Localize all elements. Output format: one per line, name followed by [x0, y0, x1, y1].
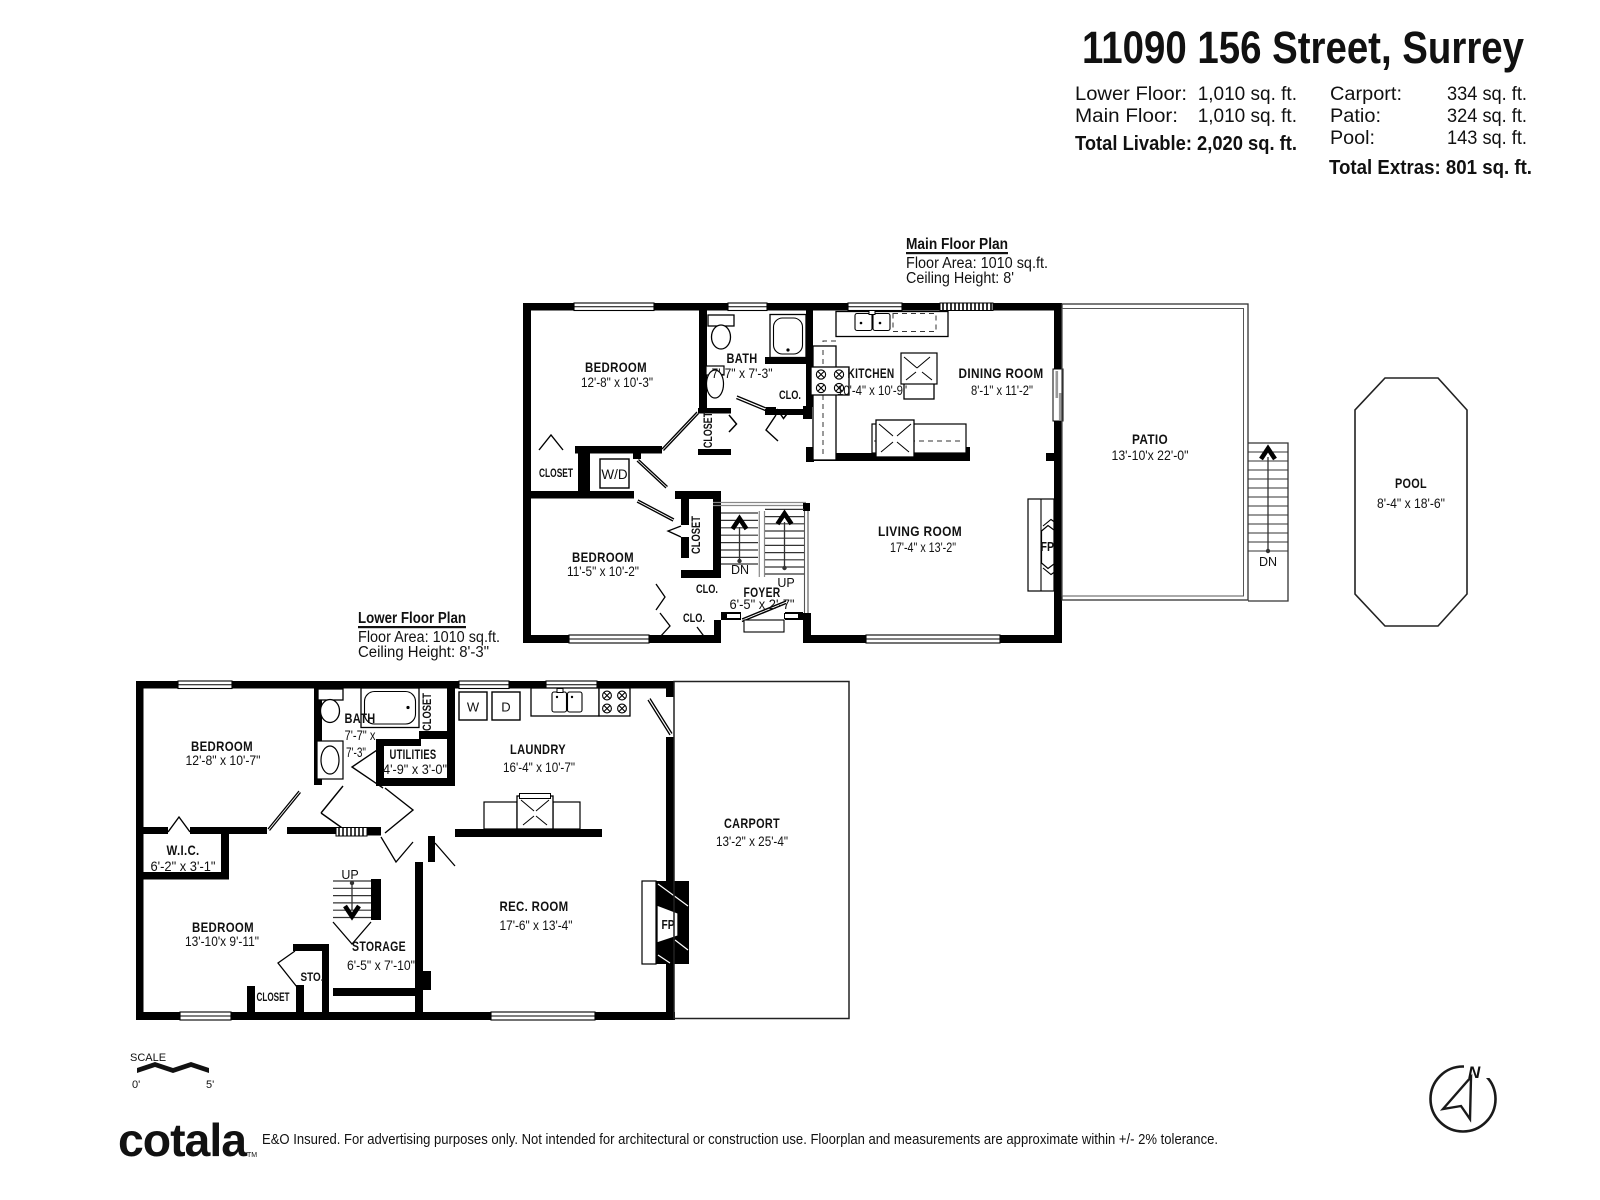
svg-text:D: D — [501, 700, 510, 715]
svg-text:0': 0' — [132, 1079, 140, 1091]
svg-text:7'-3": 7'-3" — [346, 744, 366, 760]
svg-text:W/D: W/D — [601, 467, 627, 482]
svg-text:Main Floor:: Main Floor: — [1075, 106, 1178, 127]
svg-text:10'-4" x 10'-9": 10'-4" x 10'-9" — [837, 382, 907, 398]
svg-text:143 sq. ft.: 143 sq. ft. — [1447, 128, 1527, 149]
svg-text:SCALE: SCALE — [130, 1052, 166, 1064]
svg-text:12'-8" x 10'-7": 12'-8" x 10'-7" — [186, 752, 261, 768]
svg-text:324 sq. ft.: 324 sq. ft. — [1447, 106, 1527, 127]
svg-text:W: W — [467, 700, 480, 715]
svg-text:11'-5" x 10'-2": 11'-5" x 10'-2" — [567, 563, 639, 579]
svg-text:Patio:: Patio: — [1330, 106, 1381, 127]
svg-text:CLO.: CLO. — [683, 613, 705, 625]
svg-text:CLOSET: CLOSET — [703, 412, 715, 448]
svg-text:LAUNDRY: LAUNDRY — [510, 741, 566, 757]
svg-text:CLOSET: CLOSET — [257, 992, 290, 1004]
svg-text:CLO.: CLO. — [779, 390, 801, 402]
svg-text:PATIO: PATIO — [1132, 431, 1168, 447]
svg-text:CLOSET: CLOSET — [539, 468, 573, 480]
svg-text:8'-1" x 11'-2": 8'-1" x 11'-2" — [971, 382, 1033, 398]
svg-text:W.I.C.: W.I.C. — [167, 842, 200, 858]
svg-text:UP: UP — [341, 868, 358, 882]
svg-text:6'-2" x 3'-1": 6'-2" x 3'-1" — [151, 858, 216, 874]
svg-text:11090 156 Street, Surrey: 11090 156 Street, Surrey — [1082, 22, 1524, 73]
svg-text:STORAGE: STORAGE — [352, 938, 406, 954]
svg-text:CLOSET: CLOSET — [691, 516, 703, 554]
svg-text:DINING ROOM: DINING ROOM — [959, 365, 1044, 381]
svg-text:Main Floor Plan: Main Floor Plan — [906, 236, 1008, 253]
svg-text:7'-7" x 7'-3": 7'-7" x 7'-3" — [712, 365, 773, 381]
svg-text:N: N — [1468, 1063, 1481, 1082]
svg-text:KITCHEN: KITCHEN — [848, 365, 895, 381]
svg-text:POOL: POOL — [1395, 475, 1427, 491]
svg-text:STO.: STO. — [301, 972, 324, 984]
svg-text:UTILITIES: UTILITIES — [390, 746, 437, 762]
svg-text:DN: DN — [731, 563, 749, 577]
svg-text:BATH: BATH — [727, 350, 758, 366]
svg-text:12'-8" x 10'-3": 12'-8" x 10'-3" — [581, 374, 653, 390]
svg-text:CARPORT: CARPORT — [724, 815, 780, 831]
svg-text:cotala: cotala — [118, 1114, 247, 1166]
svg-text:BEDROOM: BEDROOM — [585, 359, 647, 375]
svg-text:13'-10'x 9'-11": 13'-10'x 9'-11" — [185, 933, 259, 949]
svg-text:6'-5" x 2'-7": 6'-5" x 2'-7" — [730, 596, 795, 612]
svg-text:CLO.: CLO. — [696, 584, 718, 596]
svg-text:REC. ROOM: REC. ROOM — [500, 898, 569, 914]
svg-text:1,010 sq. ft.: 1,010 sq. ft. — [1198, 84, 1297, 105]
svg-text:5': 5' — [206, 1079, 214, 1091]
svg-text:Total Livable: 2,020 sq. ft.: Total Livable: 2,020 sq. ft. — [1075, 133, 1297, 155]
svg-text:1,010 sq. ft.: 1,010 sq. ft. — [1198, 106, 1297, 127]
svg-text:Pool:: Pool: — [1330, 128, 1375, 149]
svg-text:13'-2" x 25'-4": 13'-2" x 25'-4" — [716, 833, 788, 849]
svg-text:E&O Insured. For advertising p: E&O Insured. For advertising purposes on… — [262, 1131, 1218, 1148]
svg-text:Lower Floor Plan: Lower Floor Plan — [358, 610, 466, 627]
svg-text:4'-9" x 3'-0": 4'-9" x 3'-0" — [383, 761, 447, 777]
svg-text:334 sq. ft.: 334 sq. ft. — [1447, 84, 1527, 105]
svg-text:Total Extras: 801 sq. ft.: Total Extras: 801 sq. ft. — [1329, 157, 1532, 179]
svg-text:DN: DN — [1259, 555, 1277, 569]
svg-text:Carport:: Carport: — [1330, 84, 1402, 105]
svg-text:17'-6" x 13'-4": 17'-6" x 13'-4" — [500, 917, 573, 933]
svg-text:FP: FP — [662, 917, 675, 932]
svg-text:BATH: BATH — [345, 710, 376, 726]
svg-text:16'-4" x 10'-7": 16'-4" x 10'-7" — [503, 759, 575, 775]
svg-text:8'-4" x 18'-6": 8'-4" x 18'-6" — [1377, 495, 1445, 511]
svg-text:6'-5" x 7'-10": 6'-5" x 7'-10" — [347, 957, 415, 973]
svg-text:CLOSET: CLOSET — [422, 693, 434, 731]
svg-text:FP: FP — [1041, 540, 1055, 554]
svg-text:Ceiling Height: 8': Ceiling Height: 8' — [906, 270, 1014, 287]
svg-text:Ceiling Height: 8'-3": Ceiling Height: 8'-3" — [358, 644, 489, 661]
svg-text:TM: TM — [247, 1152, 257, 1159]
svg-text:7'-7" x: 7'-7" x — [345, 727, 376, 743]
svg-text:LIVING ROOM: LIVING ROOM — [878, 523, 962, 539]
svg-text:17'-4" x 13'-2": 17'-4" x 13'-2" — [890, 539, 956, 555]
svg-text:Lower Floor:: Lower Floor: — [1075, 84, 1187, 105]
svg-text:13'-10'x 22'-0": 13'-10'x 22'-0" — [1112, 447, 1189, 463]
